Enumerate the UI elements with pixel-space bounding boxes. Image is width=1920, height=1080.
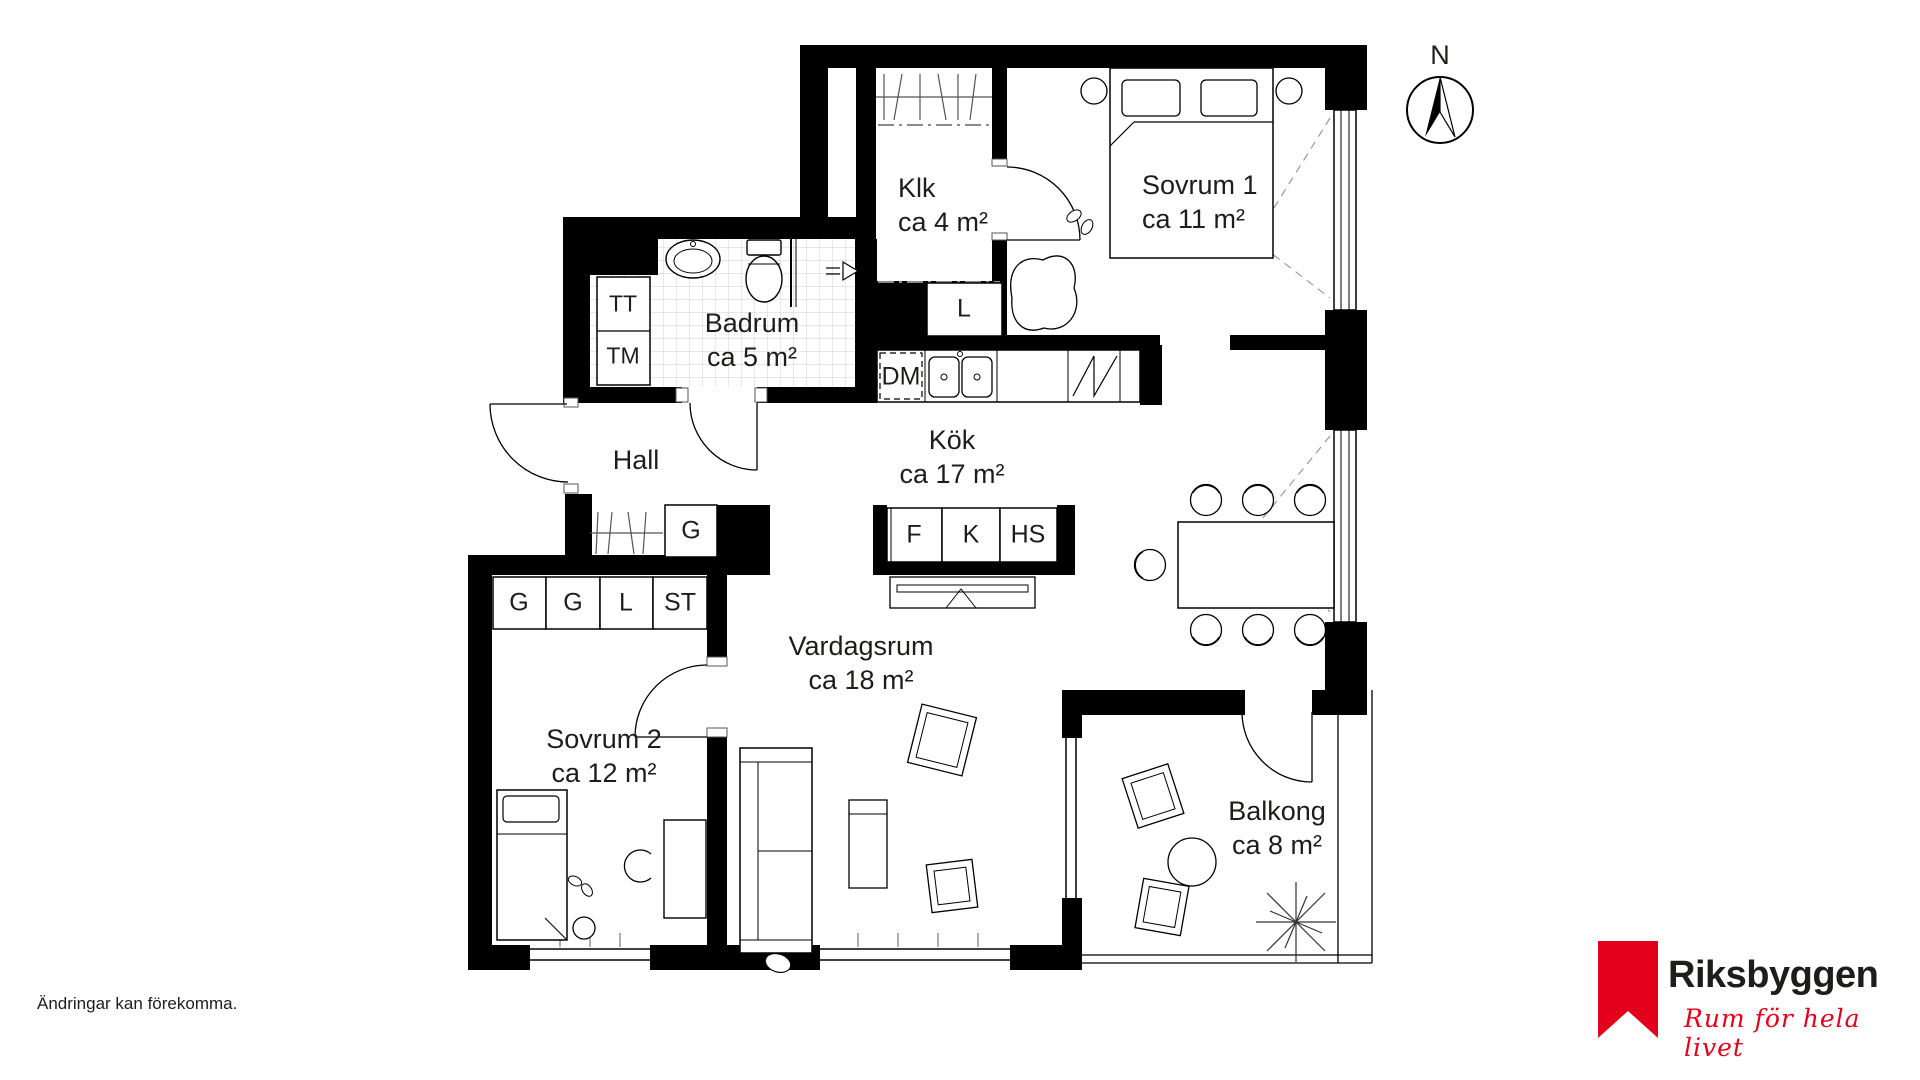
floorplan-drawing xyxy=(0,0,1920,1080)
hall-coat-rail xyxy=(590,512,663,554)
label-wardrobe-l: L xyxy=(619,589,633,618)
room-label-kok: Kökca 17 m² xyxy=(899,423,1004,491)
brand-tagline: Rum för hela livet xyxy=(1684,1004,1920,1062)
room-label-hall: Hall xyxy=(613,443,660,477)
label-washer: TM xyxy=(606,343,639,370)
label-fridge: K xyxy=(963,521,980,550)
brand-name: Riksbyggen xyxy=(1668,954,1878,997)
sideboard xyxy=(890,577,1035,608)
dining-set xyxy=(1135,485,1335,646)
riksbyggen-logo-mark xyxy=(1598,941,1658,1038)
label-tall-cabinet: HS xyxy=(1011,521,1046,550)
label-linen-closet: L xyxy=(957,295,971,324)
bedroom2-furniture xyxy=(497,790,706,940)
closet-rail-hatch xyxy=(876,74,992,120)
label-wardrobe-g2: G xyxy=(563,589,582,618)
compass-north-label: N xyxy=(1430,40,1450,71)
plant-icon xyxy=(1256,882,1336,962)
label-dryer: TT xyxy=(609,291,637,318)
label-hall-wardrobe: G xyxy=(681,517,700,546)
label-dishwasher: DM xyxy=(882,363,921,392)
label-wardrobe-g1: G xyxy=(509,589,528,618)
north-compass-icon xyxy=(1407,77,1473,143)
room-label-badrum: Badrumca 5 m² xyxy=(705,306,800,374)
disclaimer-text: Ändringar kan förekomma. xyxy=(37,994,237,1014)
room-label-vardagsrum: Vardagsrumca 18 m² xyxy=(788,629,933,697)
label-wardrobe-st: ST xyxy=(664,589,696,618)
livingroom-furniture xyxy=(740,704,978,975)
label-freezer: F xyxy=(906,521,921,550)
room-label-klk: Klkca 4 m² xyxy=(898,171,988,239)
room-label-balkong: Balkongca 8 m² xyxy=(1228,794,1326,862)
room-label-sovrum2: Sovrum 2ca 12 m² xyxy=(546,722,662,790)
floorplan-canvas: Klkca 4 m² Sovrum 1ca 11 m² Badrumca 5 m… xyxy=(0,0,1920,1080)
room-label-sovrum1: Sovrum 1ca 11 m² xyxy=(1142,168,1258,236)
